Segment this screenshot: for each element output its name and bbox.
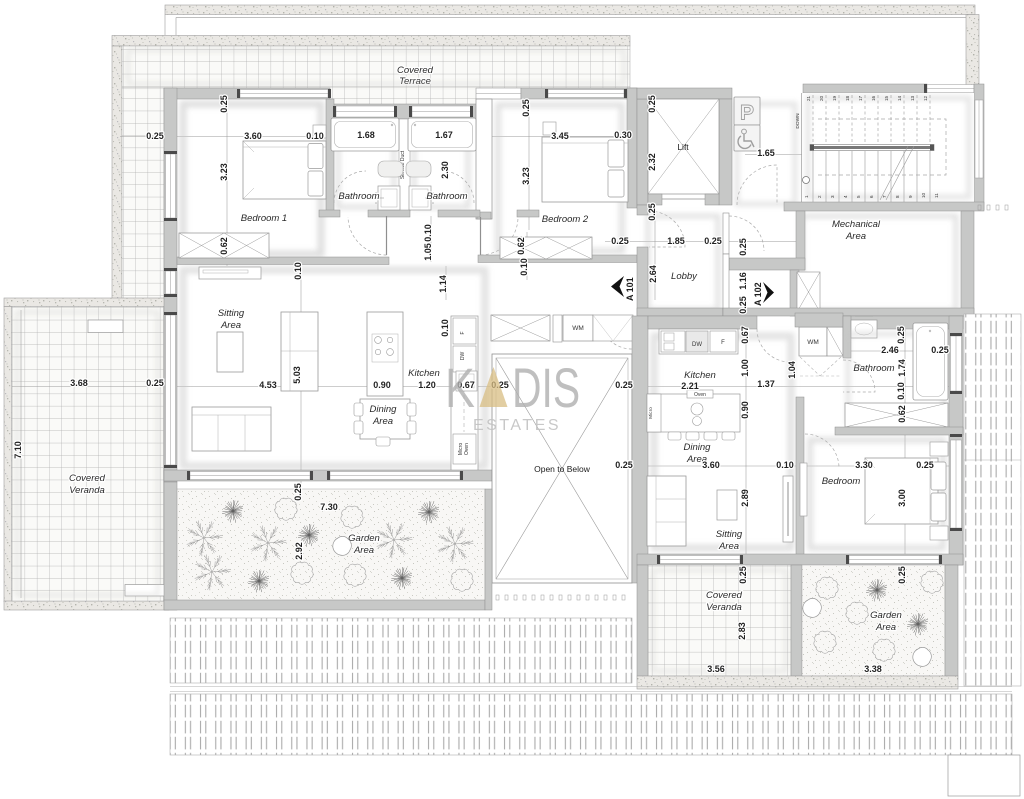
svg-text:0.25: 0.25 (647, 95, 657, 113)
svg-text:4.53: 4.53 (259, 380, 277, 390)
svg-text:Oven: Oven (694, 392, 706, 398)
svg-text:2.89: 2.89 (740, 489, 750, 507)
svg-text:0.25: 0.25 (897, 566, 907, 584)
svg-text:Garden: Garden (348, 533, 380, 544)
svg-text:Lobby: Lobby (671, 271, 698, 282)
svg-text:1.04: 1.04 (787, 361, 797, 379)
svg-text:0.10: 0.10 (519, 258, 529, 276)
svg-text:A 102: A 102 (753, 282, 763, 306)
svg-text:F: F (460, 331, 466, 334)
svg-text:Kitchen: Kitchen (684, 370, 716, 381)
svg-text:Kitchen: Kitchen (408, 368, 440, 379)
svg-text:DIS: DIS (512, 358, 580, 420)
svg-text:1.85: 1.85 (667, 236, 685, 246)
svg-text:15: 15 (884, 95, 889, 101)
svg-text:9: 9 (908, 195, 913, 198)
svg-text:2.64: 2.64 (648, 265, 658, 283)
svg-text:10: 10 (921, 192, 926, 198)
svg-text:12: 12 (923, 95, 928, 101)
svg-text:0.25: 0.25 (916, 460, 934, 470)
svg-text:Covered: Covered (706, 590, 743, 601)
svg-text:14: 14 (897, 95, 902, 101)
svg-text:0.25: 0.25 (647, 203, 657, 221)
svg-text:0.25: 0.25 (219, 95, 229, 113)
svg-text:17: 17 (858, 95, 863, 101)
svg-text:0.25: 0.25 (738, 296, 748, 314)
svg-text:1.65: 1.65 (757, 148, 775, 158)
svg-text:0.25: 0.25 (896, 326, 906, 344)
svg-text:Dining: Dining (370, 404, 398, 415)
svg-text:0.30: 0.30 (614, 130, 632, 140)
svg-text:ESTATES: ESTATES (473, 417, 561, 434)
svg-text:F: F (721, 340, 725, 346)
svg-text:20: 20 (819, 95, 824, 101)
svg-text:0.10: 0.10 (896, 382, 906, 400)
svg-text:3.56: 3.56 (707, 664, 725, 674)
svg-text:Bedroom: Bedroom (822, 476, 861, 487)
svg-text:3.00: 3.00 (897, 489, 907, 507)
svg-text:1.00: 1.00 (740, 359, 750, 377)
svg-text:13: 13 (910, 95, 915, 101)
svg-text:Area: Area (372, 416, 393, 427)
svg-text:7: 7 (882, 195, 887, 198)
svg-text:Oven: Oven (464, 443, 470, 455)
svg-text:DOWN: DOWN (795, 113, 801, 129)
svg-text:0.67: 0.67 (740, 326, 750, 344)
svg-text:P: P (740, 102, 754, 125)
svg-text:3.60: 3.60 (244, 131, 262, 141)
svg-text:1.14: 1.14 (438, 275, 448, 293)
svg-text:Bathroom: Bathroom (338, 191, 379, 202)
svg-text:0.10: 0.10 (423, 224, 433, 242)
svg-text:2.30: 2.30 (440, 161, 450, 179)
svg-text:2.83: 2.83 (737, 622, 747, 640)
svg-text:0.10: 0.10 (306, 131, 324, 141)
svg-text:5.03: 5.03 (292, 366, 302, 384)
svg-text:0.25: 0.25 (615, 460, 633, 470)
svg-text:Covered: Covered (69, 473, 106, 484)
svg-text:5: 5 (856, 195, 861, 198)
svg-text:0.25: 0.25 (738, 238, 748, 256)
svg-text:3.60: 3.60 (702, 460, 720, 470)
svg-text:19: 19 (832, 95, 837, 101)
svg-text:0.10: 0.10 (440, 319, 450, 337)
svg-text:Bedroom 2: Bedroom 2 (542, 214, 589, 225)
svg-text:Area: Area (220, 320, 241, 331)
svg-text:2.32: 2.32 (647, 153, 657, 171)
svg-text:Veranda: Veranda (69, 485, 105, 496)
svg-text:Garden: Garden (870, 610, 902, 621)
svg-text:0.62: 0.62 (219, 237, 229, 255)
svg-text:Area: Area (353, 545, 374, 556)
svg-text:18: 18 (845, 95, 850, 101)
svg-text:16: 16 (871, 95, 876, 101)
svg-text:1.05: 1.05 (423, 243, 433, 261)
svg-text:0.62: 0.62 (516, 237, 526, 255)
svg-text:Bedroom 1: Bedroom 1 (241, 213, 287, 224)
svg-text:Area: Area (875, 622, 896, 633)
svg-text:1.16: 1.16 (738, 272, 748, 290)
svg-text:3.23: 3.23 (219, 163, 229, 181)
svg-text:Covered: Covered (397, 65, 434, 76)
svg-text:Open to Below: Open to Below (534, 464, 591, 474)
svg-text:K: K (445, 356, 475, 419)
svg-text:0.25: 0.25 (293, 483, 303, 501)
svg-text:8: 8 (895, 195, 900, 198)
svg-text:1.37: 1.37 (757, 379, 775, 389)
svg-text:2.21: 2.21 (681, 381, 699, 391)
svg-text:A 101: A 101 (625, 277, 635, 301)
svg-text:Micro: Micro (648, 407, 654, 419)
svg-text:Lift: Lift (677, 142, 689, 152)
svg-text:Sitting: Sitting (218, 308, 245, 319)
svg-text:0.25: 0.25 (146, 131, 164, 141)
svg-text:0.25: 0.25 (146, 378, 164, 388)
svg-text:0.25: 0.25 (931, 345, 949, 355)
svg-text:3.45: 3.45 (551, 131, 569, 141)
svg-text:WM: WM (807, 339, 819, 346)
svg-text:Sitting: Sitting (716, 529, 743, 540)
svg-text:Dining: Dining (684, 442, 712, 453)
svg-text:4: 4 (843, 195, 848, 198)
svg-text:1.74: 1.74 (897, 359, 907, 377)
svg-text:7.10: 7.10 (13, 441, 23, 459)
svg-text:0.25: 0.25 (615, 380, 633, 390)
svg-text:0.90: 0.90 (740, 401, 750, 419)
svg-text:3.30: 3.30 (855, 460, 873, 470)
svg-text:Veranda: Veranda (706, 602, 742, 613)
svg-text:Mechanical: Mechanical (832, 219, 881, 230)
svg-text:0.10: 0.10 (293, 262, 303, 280)
svg-text:Area: Area (718, 541, 739, 552)
svg-text:1.20: 1.20 (418, 380, 436, 390)
svg-text:3: 3 (830, 195, 835, 198)
svg-text:0.25: 0.25 (611, 236, 629, 246)
svg-text:0.25: 0.25 (704, 236, 722, 246)
svg-text:2.92: 2.92 (294, 542, 304, 560)
svg-text:3.68: 3.68 (70, 378, 88, 388)
svg-text:0.62: 0.62 (897, 405, 907, 423)
svg-text:0.25: 0.25 (521, 99, 531, 117)
svg-text:Area: Area (845, 231, 866, 242)
svg-text:0.25: 0.25 (738, 566, 748, 584)
svg-text:3.38: 3.38 (864, 664, 882, 674)
svg-text:11: 11 (934, 193, 939, 198)
svg-text:3.23: 3.23 (521, 167, 531, 185)
svg-text:0.10: 0.10 (776, 460, 794, 470)
svg-text:2.46: 2.46 (881, 345, 899, 355)
svg-text:DW: DW (692, 342, 702, 348)
svg-text:6: 6 (869, 195, 874, 198)
svg-text:1.68: 1.68 (357, 130, 375, 140)
svg-text:7.30: 7.30 (320, 502, 338, 512)
svg-text:2: 2 (817, 195, 822, 198)
svg-text:Bathroom: Bathroom (426, 191, 467, 202)
svg-text:21: 21 (806, 95, 811, 101)
svg-text:0.90: 0.90 (373, 380, 391, 390)
svg-text:1: 1 (804, 195, 809, 198)
svg-text:1.67: 1.67 (435, 130, 453, 140)
svg-text:WM: WM (572, 325, 584, 332)
